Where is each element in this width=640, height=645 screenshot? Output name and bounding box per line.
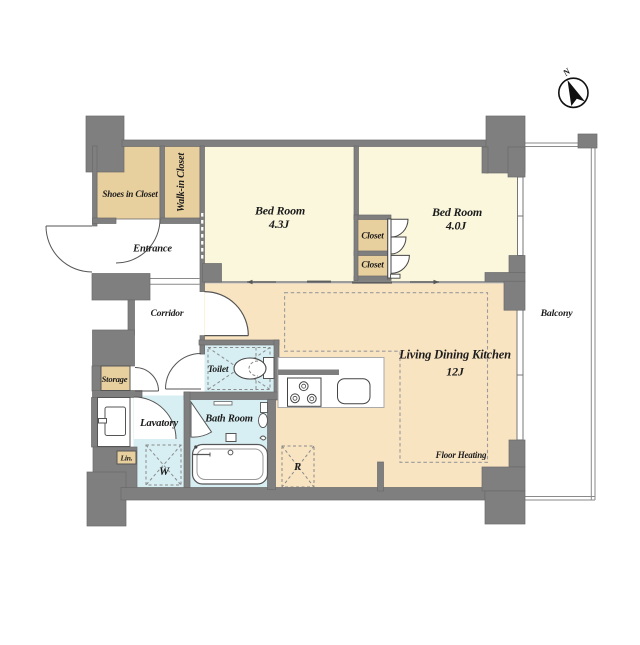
svg-text:Lavatory: Lavatory xyxy=(139,417,178,429)
svg-text:R: R xyxy=(293,462,301,473)
svg-text:4.3J: 4.3J xyxy=(268,217,290,231)
svg-text:Bed Room: Bed Room xyxy=(431,205,482,219)
svg-text:Balcony: Balcony xyxy=(540,308,574,319)
svg-text:Corridor: Corridor xyxy=(151,309,184,319)
svg-text:Entrance: Entrance xyxy=(132,243,172,254)
svg-text:Storage: Storage xyxy=(102,374,128,384)
svg-text:Floor Heating: Floor Heating xyxy=(435,450,487,460)
svg-text:12J: 12J xyxy=(446,365,465,379)
svg-text:Closet: Closet xyxy=(361,231,384,241)
svg-text:Lin.: Lin. xyxy=(120,454,133,463)
svg-text:Bath Room: Bath Room xyxy=(204,414,253,425)
svg-text:W: W xyxy=(159,466,170,478)
svg-text:Shoes in Closet: Shoes in Closet xyxy=(102,189,158,199)
svg-text:Walk-in Closet: Walk-in Closet xyxy=(176,152,187,212)
svg-text:Living Dining Kitchen: Living Dining Kitchen xyxy=(398,348,511,362)
svg-text:Bed Room: Bed Room xyxy=(254,203,305,217)
svg-text:Toilet: Toilet xyxy=(208,365,229,375)
svg-text:4.0J: 4.0J xyxy=(445,218,467,232)
svg-text:Closet: Closet xyxy=(361,260,384,270)
